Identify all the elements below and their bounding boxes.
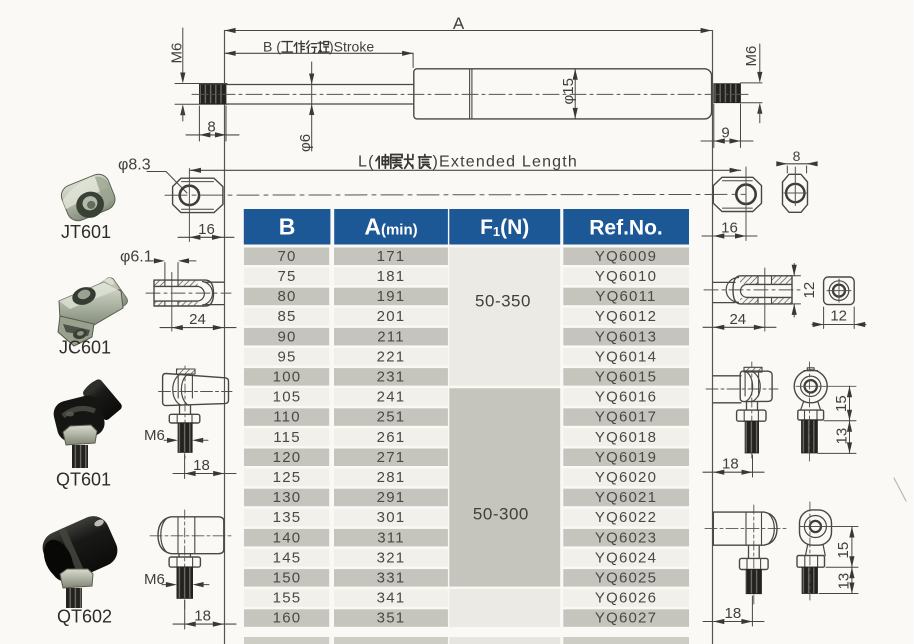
svg-text:140: 140 [273,529,302,546]
svg-text:JC601: JC601 [59,338,111,358]
svg-text:M6: M6 [743,46,760,67]
svg-text:18: 18 [722,455,739,472]
svg-text:9: 9 [721,125,729,142]
svg-text:)Stroke: )Stroke [329,39,374,55]
svg-text:15: 15 [833,395,850,412]
svg-text:24: 24 [189,311,206,328]
svg-text:YQ6022: YQ6022 [595,509,657,526]
svg-text:8: 8 [793,148,801,164]
svg-text:16: 16 [198,221,215,238]
svg-text:50-350: 50-350 [475,292,531,311]
svg-text:YQ6025: YQ6025 [595,570,657,587]
svg-text:331: 331 [377,570,406,587]
svg-text:F1(N): F1(N) [480,216,529,239]
svg-text:201: 201 [377,308,406,325]
svg-text:YQ6018: YQ6018 [595,429,657,446]
svg-text:12: 12 [830,308,847,325]
svg-text:145: 145 [273,549,302,566]
svg-text:)Extended Length: )Extended Length [433,154,579,171]
svg-text:YQ6011: YQ6011 [595,288,656,305]
svg-text:YQ6014: YQ6014 [595,348,657,365]
svg-text:221: 221 [377,348,406,365]
svg-text:281: 281 [377,469,406,486]
svg-text:16: 16 [721,220,738,237]
svg-text:L(: L( [358,154,375,171]
svg-text:321: 321 [377,549,406,566]
svg-text:B: B [279,214,296,240]
svg-text:100: 100 [273,369,302,386]
svg-text:φ6.1: φ6.1 [120,249,153,266]
svg-text:YQ6012: YQ6012 [595,308,657,325]
svg-text:135: 135 [273,509,302,526]
svg-text:115: 115 [273,429,301,446]
svg-text:15: 15 [835,542,852,559]
svg-text:125: 125 [273,469,302,486]
svg-text:85: 85 [277,308,296,325]
svg-text:231: 231 [377,369,406,386]
svg-text:90: 90 [277,328,296,345]
svg-text:211: 211 [377,328,405,345]
svg-text:150: 150 [273,570,302,587]
svg-text:YQ6024: YQ6024 [595,549,657,566]
svg-text:YQ6021: YQ6021 [595,489,657,506]
svg-text:351: 351 [377,610,406,627]
svg-text:φ15: φ15 [560,78,577,104]
svg-text:YQ6009: YQ6009 [595,248,657,265]
svg-text:181: 181 [377,268,406,285]
svg-text:191: 191 [377,288,406,305]
svg-text:110: 110 [273,409,301,426]
svg-text:JT601: JT601 [61,222,111,242]
svg-text:301: 301 [377,509,406,526]
svg-text:YQ6017: YQ6017 [595,409,657,426]
svg-text:B (: B ( [263,39,281,55]
svg-text:M6: M6 [144,427,165,444]
svg-text:18: 18 [193,457,210,474]
svg-text:171: 171 [377,248,406,265]
svg-text:24: 24 [729,311,746,328]
svg-text:130: 130 [273,489,302,506]
svg-text:Ref.No.: Ref.No. [589,217,663,240]
svg-text:YQ6013: YQ6013 [595,328,657,345]
svg-text:YQ6027: YQ6027 [595,610,657,627]
svg-text:YQ6023: YQ6023 [595,529,657,546]
svg-text:105: 105 [273,389,302,406]
svg-text:YQ6020: YQ6020 [595,469,657,486]
svg-text:A: A [453,14,465,33]
svg-text:75: 75 [277,268,296,285]
svg-text:φ6: φ6 [297,134,314,152]
svg-text:YQ6026: YQ6026 [595,590,657,607]
svg-text:251: 251 [377,409,406,426]
svg-text:271: 271 [377,449,406,466]
svg-text:341: 341 [377,590,406,607]
svg-text:YQ6019: YQ6019 [595,449,657,466]
svg-text:QT601: QT601 [56,470,111,490]
svg-text:70: 70 [277,248,296,265]
svg-text:95: 95 [277,348,296,365]
svg-text:YQ6015: YQ6015 [595,369,657,386]
svg-text:YQ6010: YQ6010 [595,268,657,285]
svg-text:18: 18 [194,608,211,625]
svg-text:50-300: 50-300 [473,505,529,524]
svg-text:155: 155 [273,590,302,607]
svg-text:13: 13 [836,573,853,590]
svg-text:261: 261 [377,429,406,446]
svg-text:160: 160 [273,610,302,627]
svg-text:18: 18 [725,605,742,622]
svg-text:241: 241 [377,389,406,406]
svg-text:80: 80 [277,288,296,305]
svg-text:12: 12 [801,282,818,299]
svg-text:120: 120 [273,449,302,466]
svg-text:291: 291 [377,489,406,506]
svg-text:13: 13 [834,428,851,445]
svg-text:311: 311 [377,529,405,546]
svg-text:φ8.3: φ8.3 [118,157,151,174]
svg-text:QT602: QT602 [57,607,112,627]
svg-text:8: 8 [207,119,215,136]
svg-text:M6: M6 [144,571,165,588]
svg-text:YQ6016: YQ6016 [595,389,657,406]
